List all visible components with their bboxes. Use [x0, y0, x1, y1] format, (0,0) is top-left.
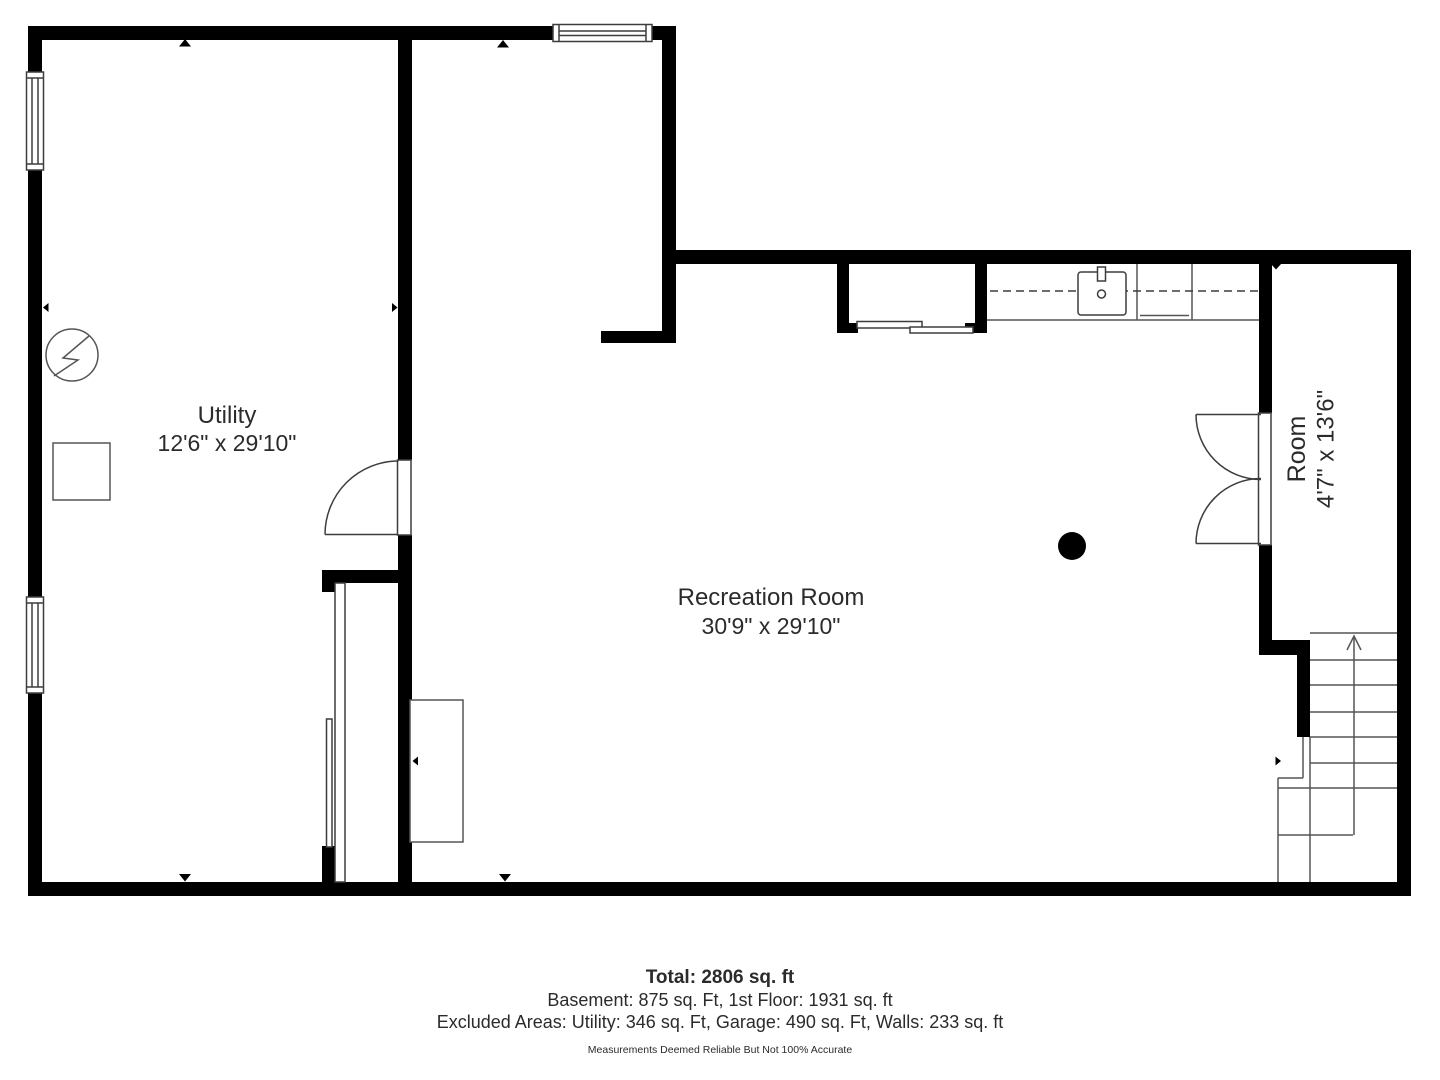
side-room-label: Room — [1283, 416, 1311, 483]
closet-door-stub-bottom — [322, 846, 335, 882]
right-wall — [1397, 250, 1411, 896]
footer-total: Total: 2806 sq. ft — [646, 967, 795, 988]
window-left-upper — [27, 72, 44, 170]
sink-icon — [1078, 267, 1126, 315]
alcove-left-wall — [837, 250, 849, 333]
room-bottom-stub — [1259, 640, 1310, 655]
footer-excluded: Excluded Areas: Utility: 346 sq. Ft, Gar… — [437, 1012, 1004, 1032]
side-room-dimensions: 4'7" x 13'6" — [1313, 390, 1340, 508]
utility-door — [325, 460, 411, 535]
floorplan-page: Utility 12'6" x 29'10" Recreation Room 3… — [0, 0, 1440, 1080]
wall-cabinet-box — [410, 700, 463, 842]
recreation-room-dimensions: 30'9" x 29'10" — [702, 613, 841, 639]
marker-down-utility — [179, 874, 191, 882]
utility-label: Utility — [198, 402, 257, 429]
marker-down-rec — [499, 874, 511, 882]
center-vertical-wall — [662, 40, 676, 343]
staircase — [1278, 633, 1397, 882]
footer-disclaimer: Measurements Deemed Reliable But Not 100… — [588, 1044, 853, 1056]
kitchen-counter — [987, 264, 1259, 320]
room-double-door — [1196, 413, 1271, 545]
marker-room-top — [1271, 264, 1282, 270]
window-top — [553, 25, 652, 42]
bottom-wall — [28, 882, 1411, 896]
utility-fixture-box — [53, 443, 110, 500]
walls — [28, 26, 1411, 896]
center-wall-foot — [601, 331, 676, 343]
alcove-right-wall — [975, 250, 987, 333]
room-left-wall-lower — [1259, 545, 1272, 655]
marker-left-utility — [43, 303, 49, 312]
electrical-panel-icon — [46, 329, 98, 381]
marker-up-utility — [179, 39, 191, 47]
marker-up-rec — [497, 40, 509, 48]
closet-sliding-door — [327, 583, 346, 882]
footer-floors: Basement: 875 sq. Ft, 1st Floor: 1931 sq… — [547, 990, 892, 1010]
window-left-lower — [27, 597, 44, 693]
recreation-room-label: Recreation Room — [678, 584, 865, 611]
marker-right-utility — [392, 303, 398, 312]
alcove-sliding-door — [857, 322, 973, 334]
floorplan-drawing: Utility 12'6" x 29'10" Recreation Room 3… — [0, 0, 1440, 1080]
support-column-dot — [1058, 532, 1086, 560]
stairs-up-arrow-icon — [1347, 636, 1361, 835]
upper-right-wall — [662, 250, 1411, 264]
marker-right-rec — [1276, 757, 1282, 766]
closet-door-stub-top — [322, 570, 335, 592]
closet-top-stub — [322, 570, 412, 583]
utility-wall-upper — [398, 40, 412, 460]
utility-dimensions: 12'6" x 29'10" — [158, 430, 297, 456]
footer: Total: 2806 sq. ft Basement: 875 sq. Ft,… — [437, 967, 1004, 1056]
room-left-wall-upper — [1259, 250, 1272, 413]
stair-left-wall — [1297, 655, 1310, 737]
